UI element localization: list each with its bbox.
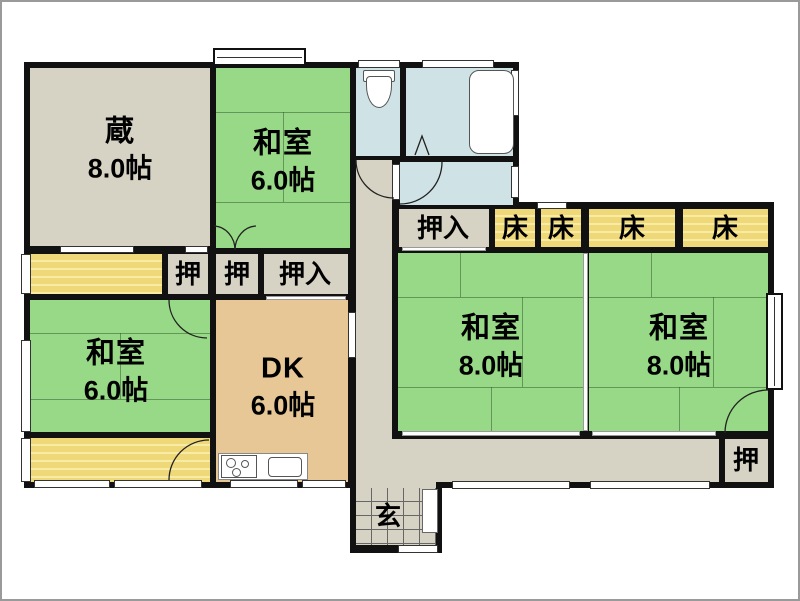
stove-burner-icon [226,458,236,468]
label-genkan: 玄 [375,500,401,534]
floor-plan: 蔵 8.0帖 和室 6.0帖 和室 6.0帖 DK 6.0帖 和室 8.0帖 和… [0,0,800,601]
window [511,166,519,198]
label-washitsu8-left: 和室 8.0帖 [459,311,524,384]
window [590,481,710,489]
room-name: 和室 [647,311,712,349]
room-size: 6.0帖 [251,388,316,423]
room-washroom [400,162,513,205]
tatami-line [460,253,461,297]
door-opening [392,164,400,200]
room-name: DK [251,351,316,389]
window [302,480,346,488]
hallway-vertical [356,160,392,439]
label-oshi-1: 押 [175,258,201,292]
label-oshiire-left: 押入 [279,258,331,292]
window [537,202,567,209]
stove-burner-icon [241,460,249,468]
window [21,340,31,432]
bay-window-right [766,293,783,390]
room-name: 和室 [459,311,524,349]
sliding-door [402,431,580,436]
door-opening [60,246,134,253]
room-size: 8.0帖 [647,348,712,383]
room-size: 8.0帖 [88,151,153,186]
hallway-horizontal [356,439,719,482]
veranda-bottom [30,438,210,482]
label-tokonoma-1: 床 [502,212,528,246]
window [21,438,31,482]
genkan-step [422,489,438,533]
tatami-line [589,297,768,298]
tatami-line [713,297,714,387]
stove-burner-icon [232,468,241,477]
window [230,480,298,488]
window [114,480,202,488]
window [452,481,570,489]
label-dk: DK 6.0帖 [251,351,316,424]
label-tokonoma-4: 床 [712,212,738,246]
bay-window-top [213,48,306,66]
sliding-door-divider [583,253,588,431]
veranda-top [30,254,162,294]
room-name: 和室 [84,336,149,374]
label-kura: 蔵 8.0帖 [88,114,153,187]
room-size: 6.0帖 [251,163,316,198]
tatami-line [491,387,492,431]
sliding-door [592,431,716,436]
label-washitsu-top: 和室 6.0帖 [251,126,316,199]
window [358,60,400,68]
bay-window-line [217,57,302,58]
window [21,254,31,294]
label-oshi-bottom: 押 [733,444,759,478]
sink-icon [268,457,302,477]
tatami-line [216,202,350,203]
bay-window-line [774,297,775,386]
label-tokonoma-2: 床 [548,212,574,246]
tatami-line [651,253,652,297]
tatami-line [398,297,583,298]
room-size: 6.0帖 [84,373,149,408]
label-oshi-2: 押 [224,258,250,292]
room-name: 和室 [251,126,316,164]
label-washitsu-left: 和室 6.0帖 [84,336,149,409]
sliding-door [402,247,486,251]
room-size: 8.0帖 [459,348,524,383]
room-name: 蔵 [88,114,153,152]
sliding-door [266,296,346,300]
door-opening [348,312,356,358]
tatami-line [679,387,680,431]
door-opening [185,246,208,253]
label-oshiire-right: 押入 [417,212,469,246]
bathtub-icon [469,70,514,154]
label-tokonoma-3: 床 [619,212,645,246]
window [34,480,110,488]
entrance-door [398,545,438,553]
label-washitsu8-right: 和室 8.0帖 [647,311,712,384]
window [422,60,494,68]
